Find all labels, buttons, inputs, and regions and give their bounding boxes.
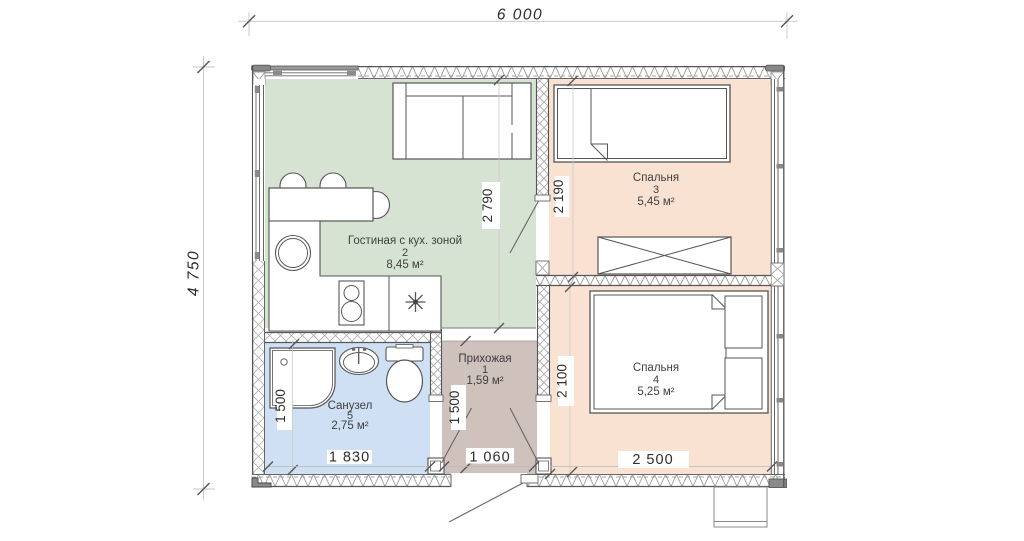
svg-text:Спальня: Спальня: [633, 172, 679, 184]
svg-text:2,75 м²: 2,75 м²: [331, 420, 368, 432]
svg-text:2 100: 2 100: [555, 364, 570, 398]
svg-text:2 500: 2 500: [632, 452, 673, 468]
svg-text:6 000: 6 000: [497, 7, 543, 24]
svg-text:5,25 м²: 5,25 м²: [637, 386, 674, 398]
svg-text:5,45 м²: 5,45 м²: [637, 196, 674, 208]
svg-text:3: 3: [653, 184, 659, 196]
svg-text:1,59 м²: 1,59 м²: [466, 375, 503, 387]
svg-text:2 790: 2 790: [480, 189, 495, 223]
svg-text:Спальня: Спальня: [633, 362, 679, 374]
svg-text:Гостиная с кух. зоной: Гостиная с кух. зоной: [348, 235, 462, 247]
svg-text:1 500: 1 500: [447, 391, 462, 425]
svg-text:2: 2: [402, 247, 408, 259]
svg-text:1 500: 1 500: [273, 389, 288, 423]
svg-text:1 060: 1 060: [469, 450, 510, 466]
svg-text:4: 4: [653, 374, 659, 386]
svg-text:2 190: 2 190: [551, 180, 566, 214]
svg-text:8,45 м²: 8,45 м²: [386, 259, 423, 271]
svg-text:4 750: 4 750: [186, 250, 203, 296]
svg-text:1 830: 1 830: [329, 450, 370, 466]
